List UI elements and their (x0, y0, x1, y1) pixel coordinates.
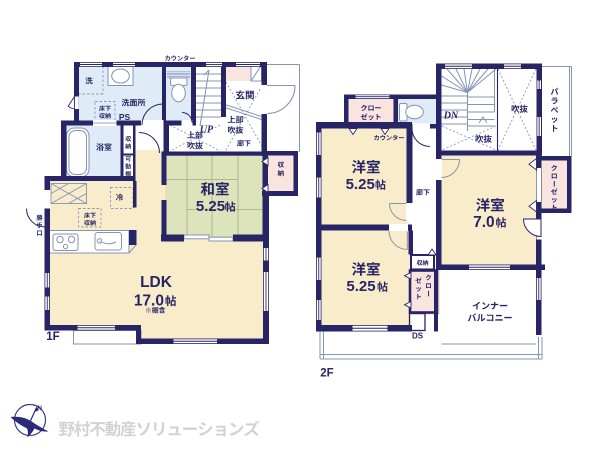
svg-text:N: N (37, 405, 42, 412)
svg-text:PS: PS (119, 112, 131, 122)
svg-text:DN: DN (443, 111, 459, 122)
svg-text:7.0: 7.0 (473, 214, 495, 231)
svg-text:DS: DS (412, 332, 424, 341)
svg-text:5.25: 5.25 (196, 198, 225, 215)
svg-text:2F: 2F (320, 368, 333, 380)
svg-text:5.25: 5.25 (346, 176, 375, 193)
svg-text:17.0: 17.0 (134, 292, 164, 309)
svg-text:LDK: LDK (140, 274, 173, 291)
svg-text:1F: 1F (46, 331, 59, 343)
svg-text:5.25: 5.25 (346, 278, 375, 295)
